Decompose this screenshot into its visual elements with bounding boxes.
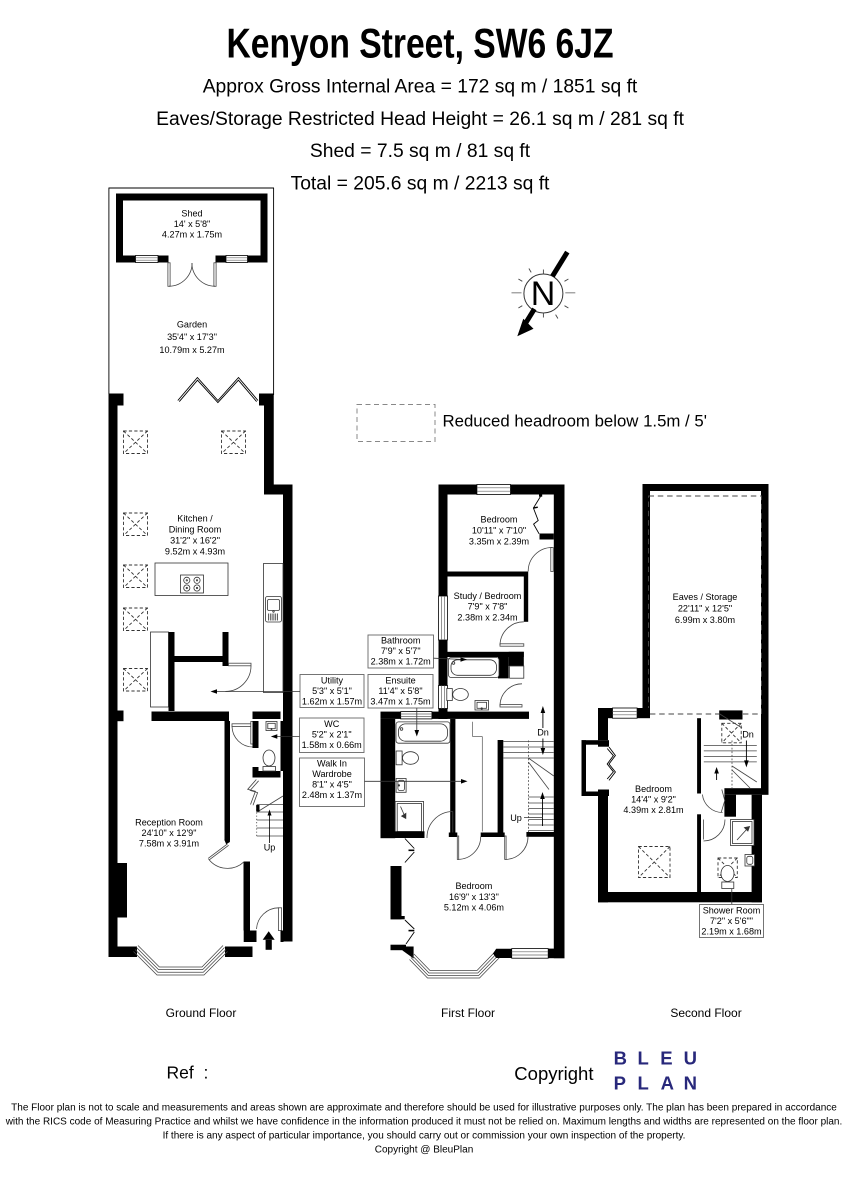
svg-text:5'2" x 2'1": 5'2" x 2'1": [312, 730, 352, 740]
svg-text:31'2" x 16'2": 31'2" x 16'2": [170, 536, 220, 546]
svg-text:Eaves / Storage: Eaves / Storage: [673, 592, 738, 602]
svg-text:10'11" x 7'10": 10'11" x 7'10": [472, 526, 526, 536]
svg-text:3.47m x 1.75m: 3.47m x 1.75m: [370, 697, 430, 707]
svg-text:Up: Up: [510, 813, 522, 823]
svg-text:4.27m x 1.75m: 4.27m x 1.75m: [162, 230, 222, 240]
svg-text:1.58m x 0.66m: 1.58m x 0.66m: [302, 740, 362, 750]
svg-text:Garden: Garden: [177, 320, 207, 330]
svg-text:Ref :: Ref :: [167, 1063, 209, 1083]
svg-text:24'10" x 12'9": 24'10" x 12'9": [142, 828, 197, 838]
svg-text:2.38m x 2.34m: 2.38m x 2.34m: [457, 613, 517, 623]
svg-text:Eaves/Storage Restricted Head: Eaves/Storage Restricted Head Height = 2…: [156, 109, 684, 130]
svg-text:Bedroom: Bedroom: [455, 881, 492, 891]
svg-text:Dining Room: Dining Room: [169, 525, 222, 535]
svg-text:Wardrobe: Wardrobe: [312, 769, 352, 779]
svg-text:9.52m x 4.93m: 9.52m x 4.93m: [165, 547, 225, 557]
svg-text:N: N: [684, 1072, 697, 1093]
svg-text:Up: Up: [264, 843, 276, 853]
svg-text:10.79m x 5.27m: 10.79m x 5.27m: [159, 345, 224, 355]
svg-text:4.39m x 2.81m: 4.39m x 2.81m: [623, 805, 683, 815]
svg-text:14' x 5'8": 14' x 5'8": [174, 219, 211, 229]
svg-text:Reception Room: Reception Room: [135, 818, 203, 828]
svg-text:Copyright: Copyright: [514, 1063, 593, 1084]
svg-text:Reduced headroom below 1.5m /: Reduced headroom below 1.5m / 5': [443, 412, 707, 431]
svg-text:A: A: [661, 1072, 674, 1093]
svg-text:P: P: [614, 1072, 626, 1093]
svg-text:Study / Bedroom: Study / Bedroom: [454, 591, 522, 601]
svg-text:5.12m x 4.06m: 5.12m x 4.06m: [444, 902, 504, 912]
svg-text:with the RICS code of Measurin: with the RICS code of Measuring Practice…: [5, 1117, 843, 1128]
svg-text:Approx Gross Internal Area = 1: Approx Gross Internal Area = 172 sq m / …: [203, 76, 638, 97]
svg-text:B: B: [614, 1048, 627, 1069]
svg-text:First Floor: First Floor: [441, 1006, 495, 1020]
svg-text:Shed: Shed: [181, 209, 202, 219]
svg-text:Bedroom: Bedroom: [635, 784, 672, 794]
svg-text:E: E: [660, 1048, 672, 1069]
svg-text:2.38m x 1.72m: 2.38m x 1.72m: [371, 657, 431, 667]
svg-text:Ensuite: Ensuite: [385, 676, 415, 686]
svg-text:22'11" x 12'5": 22'11" x 12'5": [678, 604, 732, 614]
svg-text:WC: WC: [324, 719, 340, 729]
svg-text:Ground Floor: Ground Floor: [166, 1006, 237, 1020]
svg-text:Copyright @ BleuPlan: Copyright @ BleuPlan: [375, 1145, 474, 1156]
svg-text:Kenyon Street, SW6 6JZ: Kenyon Street, SW6 6JZ: [227, 20, 614, 67]
svg-text:2.19m x 1.68m: 2.19m x 1.68m: [701, 927, 761, 937]
svg-text:Second Floor: Second Floor: [670, 1006, 741, 1020]
svg-text:Walk In: Walk In: [317, 759, 347, 769]
svg-text:6.99m x 3.80m: 6.99m x 3.80m: [675, 615, 735, 625]
svg-text:If there is any aspect of part: If there is any aspect of particular imp…: [163, 1131, 686, 1142]
svg-text:2.48m x 1.37m: 2.48m x 1.37m: [302, 790, 362, 800]
svg-text:7'9" x 5'7": 7'9" x 5'7": [381, 646, 421, 656]
svg-text:L: L: [638, 1072, 649, 1093]
svg-text:14'4" x 9'2": 14'4" x 9'2": [631, 795, 676, 805]
svg-text:Shower Room: Shower Room: [703, 906, 761, 916]
svg-text:7'2" x 5'6"": 7'2" x 5'6"": [710, 916, 753, 926]
svg-text:L: L: [638, 1048, 649, 1069]
svg-text:11'4" x 5'8": 11'4" x 5'8": [378, 686, 422, 696]
svg-text:3.35m x 2.39m: 3.35m x 2.39m: [469, 537, 529, 547]
svg-text:Dn: Dn: [537, 728, 549, 738]
svg-text:8'1" x 4'5": 8'1" x 4'5": [312, 780, 352, 790]
svg-text:16'9" x 13'3": 16'9" x 13'3": [449, 892, 499, 902]
svg-text:5'3" x 5'1": 5'3" x 5'1": [312, 686, 352, 696]
svg-text:Kitchen /: Kitchen /: [177, 514, 213, 524]
svg-text:U: U: [684, 1048, 697, 1069]
svg-text:Dn: Dn: [742, 730, 754, 740]
svg-text:7'9" x 7'8": 7'9" x 7'8": [468, 602, 508, 612]
svg-text:35'4" x 17'3": 35'4" x 17'3": [167, 332, 217, 342]
svg-text:Shed = 7.5 sq m / 81 sq ft: Shed = 7.5 sq m / 81 sq ft: [310, 141, 531, 162]
svg-text:7.58m x 3.91m: 7.58m x 3.91m: [139, 839, 199, 849]
svg-text:N: N: [531, 275, 556, 313]
svg-text:Total = 205.6 sq m / 2213 sq f: Total = 205.6 sq m / 2213 sq ft: [291, 174, 550, 195]
svg-text:Bedroom: Bedroom: [481, 515, 518, 525]
svg-text:1.62m x 1.57m: 1.62m x 1.57m: [302, 697, 362, 707]
svg-text:The Floor plan is not to scale: The Floor plan is not to scale and measu…: [11, 1103, 837, 1114]
svg-text:Bathroom: Bathroom: [381, 636, 420, 646]
svg-text:Utility: Utility: [321, 676, 344, 686]
